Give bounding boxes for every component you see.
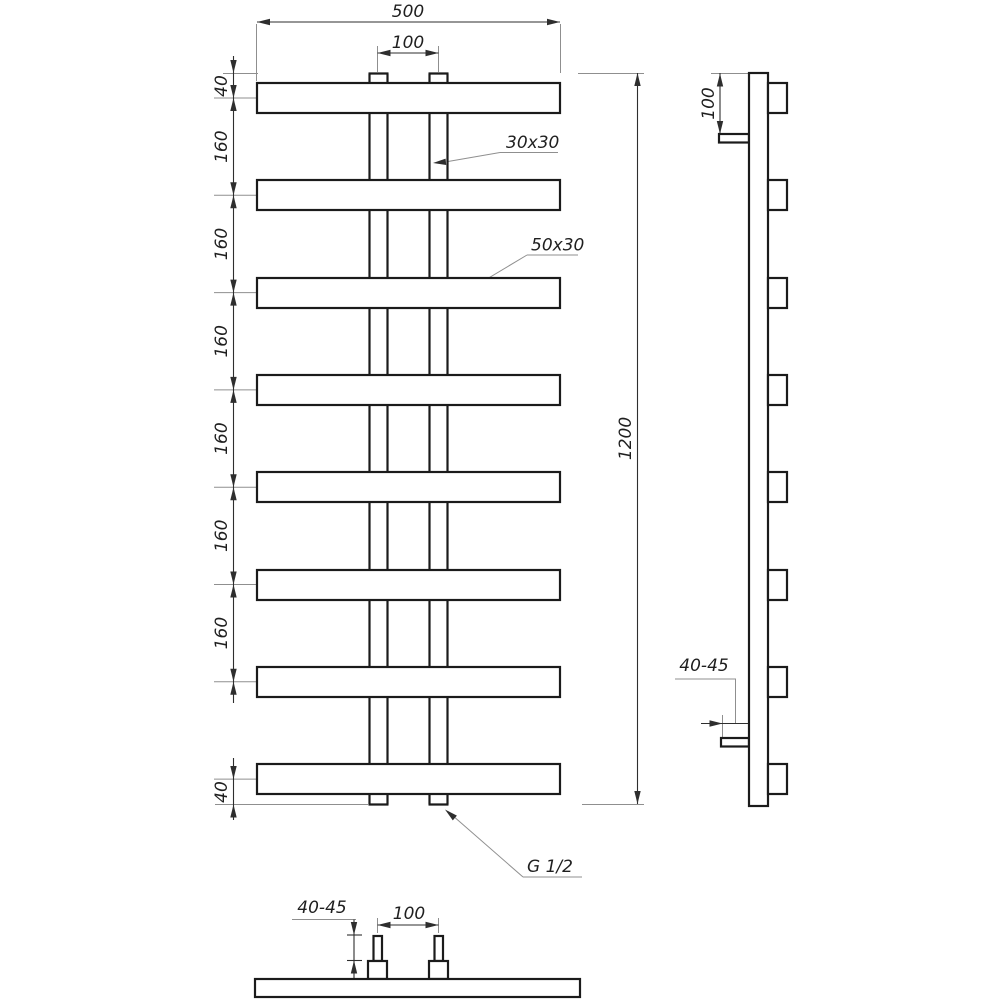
- dim-overall-height: 1200: [616, 417, 636, 460]
- connector-base-right: [429, 961, 448, 979]
- rung-bar: [257, 667, 560, 697]
- label-rung-section: 50x30: [531, 236, 584, 256]
- front-view: [257, 74, 560, 805]
- dim-overall-width: 500: [392, 2, 424, 22]
- dim-bottom-offset: 40: [212, 781, 232, 803]
- dim-rung-spacing-2: 160: [212, 228, 232, 260]
- upright-profile: [749, 73, 768, 806]
- towel-rail-technical-drawing: 500 100 40 160 160 160 160 160 160 40 12…: [0, 0, 1000, 1000]
- drawing-page: 500 100 40 160 160 160 160 160 160 40 12…: [0, 0, 1000, 1000]
- bottom-view: [255, 936, 580, 997]
- rung-bar: [257, 278, 560, 308]
- dim-side-top-offset: 100: [699, 87, 719, 119]
- connector-pipe-right: [435, 936, 444, 961]
- dim-bottom-connector-pitch: 100: [393, 904, 425, 924]
- dim-rung-spacing-5: 160: [212, 520, 232, 552]
- dim-rung-spacing-4: 160: [212, 422, 232, 454]
- rung-bar: [257, 83, 560, 113]
- dim-top-offset: 40: [212, 75, 232, 97]
- wall-bracket-top: [719, 134, 749, 143]
- label-thread-size: G 1/2: [527, 857, 573, 877]
- dim-rung-spacing-3: 160: [212, 325, 232, 357]
- rung-ends: [768, 83, 787, 794]
- rung-bars: [257, 83, 560, 794]
- side-view: [719, 73, 787, 806]
- rung-bar: [257, 180, 560, 210]
- wall-bracket-bottom: [721, 738, 749, 747]
- rung-bar: [257, 570, 560, 600]
- dim-bottom-wall-clearance: 40-45: [297, 898, 346, 918]
- dimension-lines: [234, 22, 769, 985]
- bottom-rung-bar: [255, 979, 580, 997]
- dim-connector-pitch: 100: [392, 33, 424, 53]
- connector-base-left: [368, 961, 387, 979]
- rung-bar: [257, 472, 560, 502]
- dim-rung-spacing-1: 160: [212, 130, 232, 162]
- dim-rung-spacing-6: 160: [212, 617, 232, 649]
- rung-bar: [257, 764, 560, 794]
- label-upright-section: 30x30: [506, 133, 559, 153]
- rung-bar: [257, 375, 560, 405]
- connector-pipe-left: [374, 936, 383, 961]
- dim-side-wall-clearance: 40-45: [679, 656, 728, 676]
